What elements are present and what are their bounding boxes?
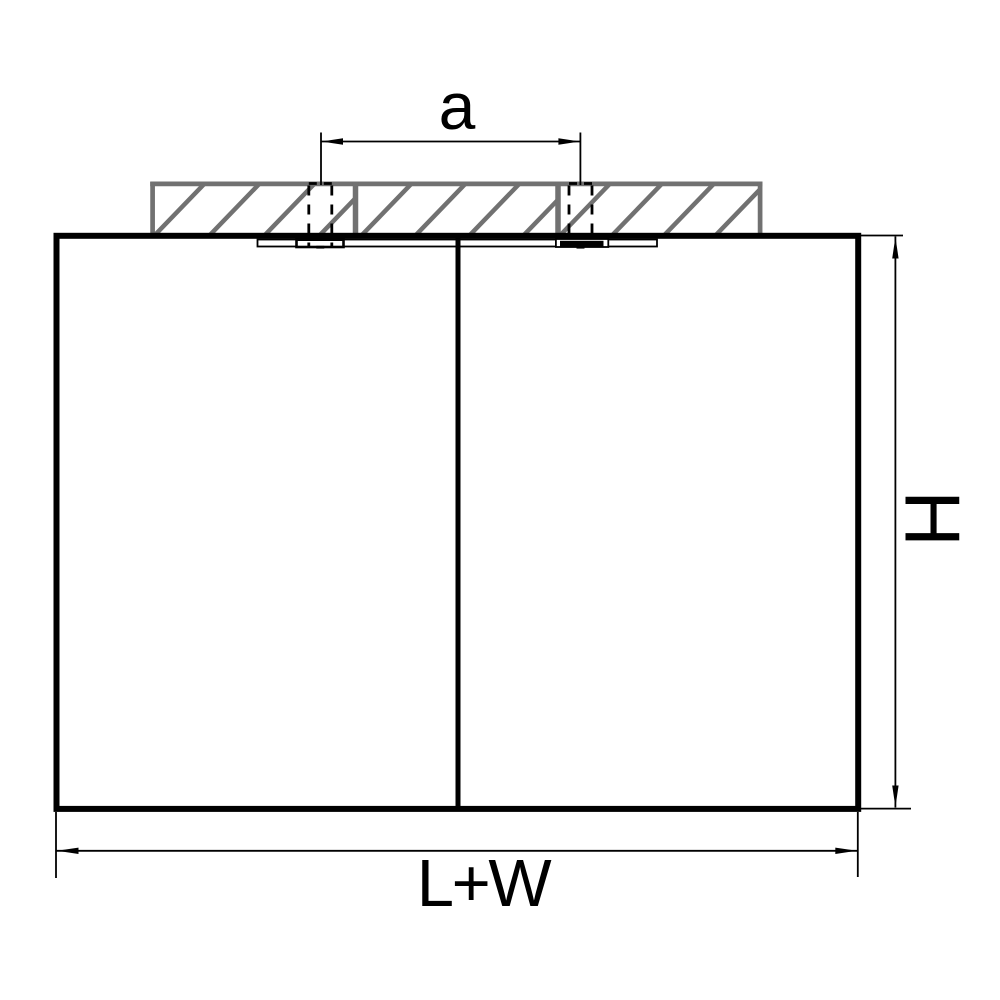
svg-text:a: a bbox=[439, 69, 476, 143]
svg-text:L+W: L+W bbox=[417, 846, 553, 921]
svg-text:H: H bbox=[888, 490, 976, 546]
